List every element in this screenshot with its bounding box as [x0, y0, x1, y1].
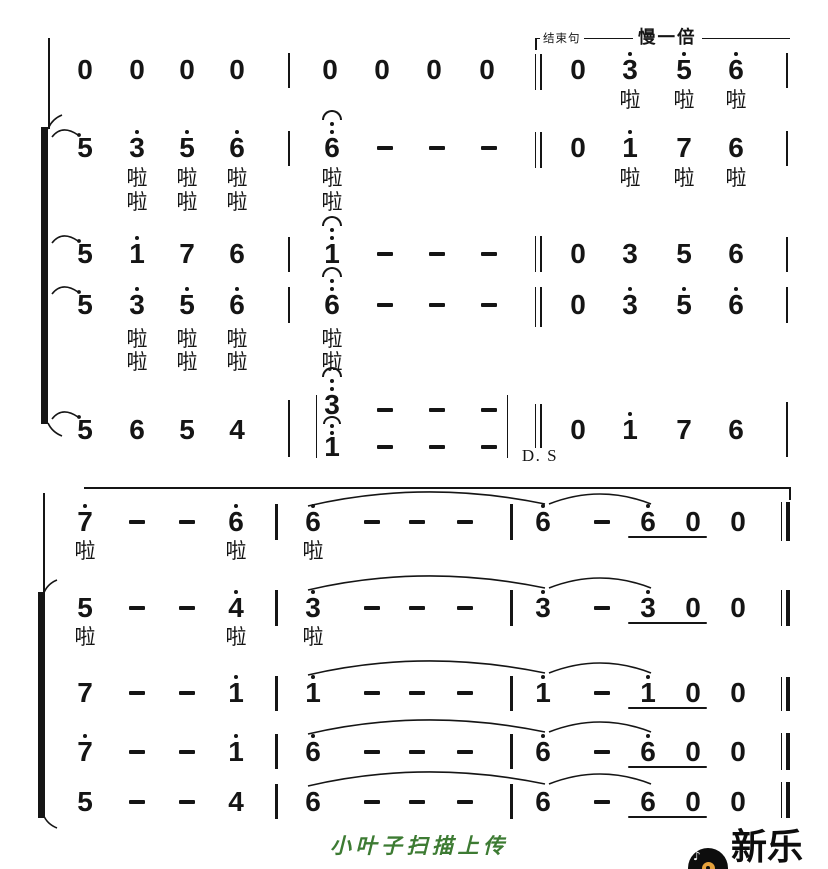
- note-glyph: 7: [669, 415, 699, 445]
- barline: [535, 54, 537, 90]
- dash-glyph: [364, 800, 380, 804]
- barline: [786, 53, 788, 88]
- note-glyph: 3: [528, 593, 558, 623]
- tie-slur: [308, 576, 545, 590]
- barline: [781, 782, 783, 818]
- dash-glyph: [409, 800, 425, 804]
- rest-glyph: 0: [563, 290, 593, 320]
- site-logo-text: 新乐谱: [731, 826, 828, 869]
- barline: [781, 502, 783, 541]
- barline: [540, 132, 542, 168]
- barline: [288, 400, 290, 457]
- barline: [781, 677, 783, 711]
- rest-glyph: 0: [723, 787, 753, 817]
- note-glyph: 4: [221, 593, 251, 623]
- dash-glyph: [594, 750, 610, 754]
- note-glyph: 4: [221, 787, 251, 817]
- tie-slur: [549, 494, 651, 504]
- barline: [786, 502, 790, 541]
- lyric-syllable: 啦: [318, 167, 346, 191]
- note-glyph: 1: [633, 678, 663, 708]
- note-glyph: 3: [615, 239, 645, 269]
- lyric-syllable: 啦: [71, 626, 99, 650]
- note-glyph: 5: [669, 290, 699, 320]
- note-glyph: 6: [317, 133, 347, 163]
- rest-glyph: 0: [678, 737, 708, 767]
- dash-glyph: [457, 750, 473, 754]
- brace-hook: [44, 580, 58, 594]
- barline: [786, 677, 790, 711]
- dash-glyph: [481, 303, 497, 307]
- system-line: [48, 38, 50, 129]
- note-glyph: 1: [122, 239, 152, 269]
- note-glyph: 6: [317, 290, 347, 320]
- ending-bracket-line: [84, 487, 791, 489]
- note-glyph: 5: [70, 133, 100, 163]
- rest-glyph: 0: [563, 55, 593, 85]
- dash-glyph: [364, 750, 380, 754]
- dash-glyph: [457, 691, 473, 695]
- lyric-syllable: 啦: [173, 328, 201, 352]
- barline: [275, 734, 277, 769]
- barline: [535, 132, 537, 168]
- dash-glyph: [377, 146, 393, 150]
- rest-glyph: 0: [563, 415, 593, 445]
- barline: [786, 782, 790, 818]
- dash-glyph: [377, 445, 393, 449]
- rest-glyph: 0: [723, 507, 753, 537]
- rest-glyph: 0: [723, 737, 753, 767]
- note-glyph: 6: [298, 787, 328, 817]
- note-glyph: 3: [615, 290, 645, 320]
- barline: [535, 287, 537, 327]
- barline: [510, 590, 512, 626]
- dash-glyph: [179, 750, 195, 754]
- fermata-dot: [330, 279, 334, 283]
- lyric-syllable: 啦: [616, 167, 644, 191]
- rest-glyph: 0: [678, 507, 708, 537]
- barline: [786, 590, 790, 626]
- dash-glyph: [481, 408, 497, 412]
- dash-glyph: [377, 303, 393, 307]
- dash-glyph: [129, 520, 145, 524]
- note-glyph: 5: [172, 415, 202, 445]
- note-glyph: 6: [721, 415, 751, 445]
- lyric-syllable: 啦: [670, 89, 698, 113]
- dash-glyph: [364, 606, 380, 610]
- note-glyph: 5: [70, 290, 100, 320]
- lyric-syllable: 啦: [299, 626, 327, 650]
- dash-glyph: [429, 303, 445, 307]
- dash-glyph: [457, 800, 473, 804]
- barline: [288, 237, 290, 272]
- dash-glyph: [457, 606, 473, 610]
- note-glyph: 6: [298, 737, 328, 767]
- tempo-label: 慢一倍: [633, 24, 702, 49]
- note-glyph: 6: [222, 239, 252, 269]
- note-glyph: 1: [615, 415, 645, 445]
- lyric-syllable: 啦: [123, 167, 151, 191]
- rest-glyph: 0: [563, 239, 593, 269]
- rest-glyph: 0: [367, 55, 397, 85]
- dash-glyph: [179, 691, 195, 695]
- lyric-syllable: 啦: [123, 351, 151, 375]
- barline: [288, 287, 290, 323]
- dash-glyph: [409, 750, 425, 754]
- fermata-dot: [330, 424, 334, 428]
- dash-glyph: [409, 520, 425, 524]
- dash-glyph: [129, 750, 145, 754]
- fermata-dot: [330, 228, 334, 232]
- note-glyph: 6: [122, 415, 152, 445]
- note-glyph: 1: [317, 432, 347, 462]
- note-glyph: 6: [633, 787, 663, 817]
- brace-hook: [44, 815, 58, 828]
- dash-glyph: [457, 520, 473, 524]
- ending-phrase-label: 结束句: [540, 30, 584, 46]
- dash-glyph: [377, 408, 393, 412]
- dash-glyph: [129, 606, 145, 610]
- barline: [540, 54, 542, 90]
- lyric-syllable: 啦: [123, 191, 151, 215]
- note-glyph: 1: [221, 678, 251, 708]
- barline: [540, 236, 542, 272]
- note-glyph: 6: [298, 507, 328, 537]
- lyric-syllable: 啦: [173, 351, 201, 375]
- note-glyph: 6: [528, 507, 558, 537]
- note-glyph: 5: [70, 415, 100, 445]
- dash-glyph: [429, 445, 445, 449]
- barline: [786, 287, 788, 323]
- barline: [540, 287, 542, 327]
- brace-hook: [48, 423, 62, 436]
- note-glyph: 3: [633, 593, 663, 623]
- note-glyph: 6: [221, 507, 251, 537]
- dash-glyph: [409, 606, 425, 610]
- note-glyph: 6: [721, 55, 751, 85]
- note-glyph: 4: [222, 415, 252, 445]
- note-glyph: 3: [298, 593, 328, 623]
- note-glyph: 1: [528, 678, 558, 708]
- barline: [510, 734, 512, 769]
- note-glyph: 6: [222, 290, 252, 320]
- tie-slur: [549, 663, 651, 673]
- dash-glyph: [179, 520, 195, 524]
- barline: [507, 395, 508, 458]
- note-glyph: 5: [669, 239, 699, 269]
- system-brace: [41, 127, 48, 424]
- barline: [275, 676, 277, 711]
- lyric-syllable: 啦: [318, 191, 346, 215]
- barline: [275, 784, 277, 819]
- lyric-syllable: 啦: [123, 328, 151, 352]
- rest-glyph: 0: [563, 133, 593, 163]
- tie-slur: [549, 722, 651, 732]
- dash-glyph: [429, 146, 445, 150]
- lyric-syllable: 啦: [71, 540, 99, 564]
- music-note-icon: ♪: [693, 849, 701, 863]
- dash-glyph: [179, 800, 195, 804]
- ending-bracket-tick: [789, 487, 791, 500]
- tie-slur: [308, 720, 545, 734]
- dash-glyph: [429, 408, 445, 412]
- barline: [786, 237, 788, 272]
- tie-slur: [549, 578, 651, 588]
- fermata-icon: [322, 216, 342, 226]
- dash-glyph: [377, 252, 393, 256]
- note-glyph: 6: [633, 507, 663, 537]
- rest-glyph: 0: [315, 55, 345, 85]
- note-glyph: 5: [172, 133, 202, 163]
- barline: [510, 784, 512, 819]
- dash-glyph: [129, 691, 145, 695]
- lyric-syllable: 啦: [173, 191, 201, 215]
- dash-glyph: [481, 252, 497, 256]
- dash-glyph: [594, 520, 610, 524]
- vinyl-record-icon: ♪ ♪: [688, 848, 728, 869]
- barline: [786, 402, 788, 457]
- site-logo: ♪ ♪ 新乐谱: [688, 826, 828, 869]
- barline: [275, 590, 277, 626]
- barline: [535, 404, 537, 448]
- rest-glyph: 0: [723, 593, 753, 623]
- note-glyph: 6: [721, 239, 751, 269]
- note-glyph: 3: [122, 290, 152, 320]
- rest-glyph: 0: [172, 55, 202, 85]
- dash-glyph: [409, 691, 425, 695]
- note-glyph: 5: [70, 593, 100, 623]
- rest-glyph: 0: [472, 55, 502, 85]
- note-glyph: 1: [298, 678, 328, 708]
- sheet-music-page: 结束句 慢一倍 D. S 小叶子扫描上传 ♪ ♪ 新乐谱 00000000035…: [0, 0, 828, 869]
- note-glyph: 6: [721, 290, 751, 320]
- rest-glyph: 0: [122, 55, 152, 85]
- barline: [510, 504, 512, 540]
- ending-bracket-tick: [535, 38, 537, 50]
- note-glyph: 1: [615, 133, 645, 163]
- fermata-dot: [330, 122, 334, 126]
- dash-glyph: [129, 800, 145, 804]
- fermata-dot: [330, 379, 334, 383]
- barline: [510, 676, 512, 711]
- lyric-syllable: 啦: [299, 540, 327, 564]
- note-glyph: 6: [528, 737, 558, 767]
- barline: [781, 733, 783, 770]
- lyric-syllable: 啦: [223, 351, 251, 375]
- lyric-syllable: 啦: [222, 540, 250, 564]
- dash-glyph: [364, 520, 380, 524]
- rest-glyph: 0: [678, 787, 708, 817]
- lyric-syllable: 啦: [670, 167, 698, 191]
- note-glyph: 5: [70, 239, 100, 269]
- note-glyph: 7: [669, 133, 699, 163]
- note-glyph: 6: [222, 133, 252, 163]
- barline: [288, 53, 290, 88]
- note-glyph: 3: [122, 133, 152, 163]
- brace-hook: [48, 115, 62, 129]
- barline: [540, 404, 542, 448]
- tie-slur: [308, 661, 545, 675]
- lyric-syllable: 啦: [223, 328, 251, 352]
- barline: [288, 131, 290, 166]
- note-glyph: 5: [669, 55, 699, 85]
- note-glyph: 3: [615, 55, 645, 85]
- rest-glyph: 0: [70, 55, 100, 85]
- note-glyph: 7: [172, 239, 202, 269]
- note-glyph: 6: [528, 787, 558, 817]
- barline: [781, 590, 783, 626]
- lyric-syllable: 啦: [173, 167, 201, 191]
- note-glyph: 1: [317, 239, 347, 269]
- system-line: [43, 493, 45, 594]
- dash-glyph: [429, 252, 445, 256]
- note-glyph: 7: [70, 678, 100, 708]
- system-brace: [38, 592, 45, 818]
- dash-glyph: [594, 606, 610, 610]
- rest-glyph: 0: [419, 55, 449, 85]
- note-glyph: 5: [70, 787, 100, 817]
- note-glyph: 1: [221, 737, 251, 767]
- barline: [786, 733, 790, 770]
- dash-glyph: [481, 445, 497, 449]
- lyric-syllable: 啦: [722, 167, 750, 191]
- dash-glyph: [179, 606, 195, 610]
- fermata-icon: [322, 110, 342, 120]
- rest-glyph: 0: [723, 678, 753, 708]
- barline: [535, 236, 537, 272]
- rest-glyph: 0: [678, 678, 708, 708]
- rest-glyph: 0: [678, 593, 708, 623]
- uploader-credit: 小叶子扫描上传: [330, 830, 509, 860]
- tie-slur: [549, 774, 651, 784]
- lyric-syllable: 啦: [616, 89, 644, 113]
- note-glyph: 5: [172, 290, 202, 320]
- dash-glyph: [594, 691, 610, 695]
- rest-glyph: 0: [222, 55, 252, 85]
- note-glyph: 7: [70, 737, 100, 767]
- dal-segno-label: D. S: [512, 446, 568, 466]
- barline: [786, 131, 788, 166]
- dash-glyph: [594, 800, 610, 804]
- lyric-syllable: 啦: [722, 89, 750, 113]
- lyric-syllable: 啦: [318, 328, 346, 352]
- barline: [275, 504, 277, 540]
- note-glyph: 7: [70, 507, 100, 537]
- lyric-syllable: 啦: [222, 626, 250, 650]
- lyric-syllable: 啦: [223, 167, 251, 191]
- lyric-syllable: 啦: [223, 191, 251, 215]
- dash-glyph: [364, 691, 380, 695]
- note-glyph: 6: [633, 737, 663, 767]
- note-glyph: 6: [721, 133, 751, 163]
- dash-glyph: [481, 146, 497, 150]
